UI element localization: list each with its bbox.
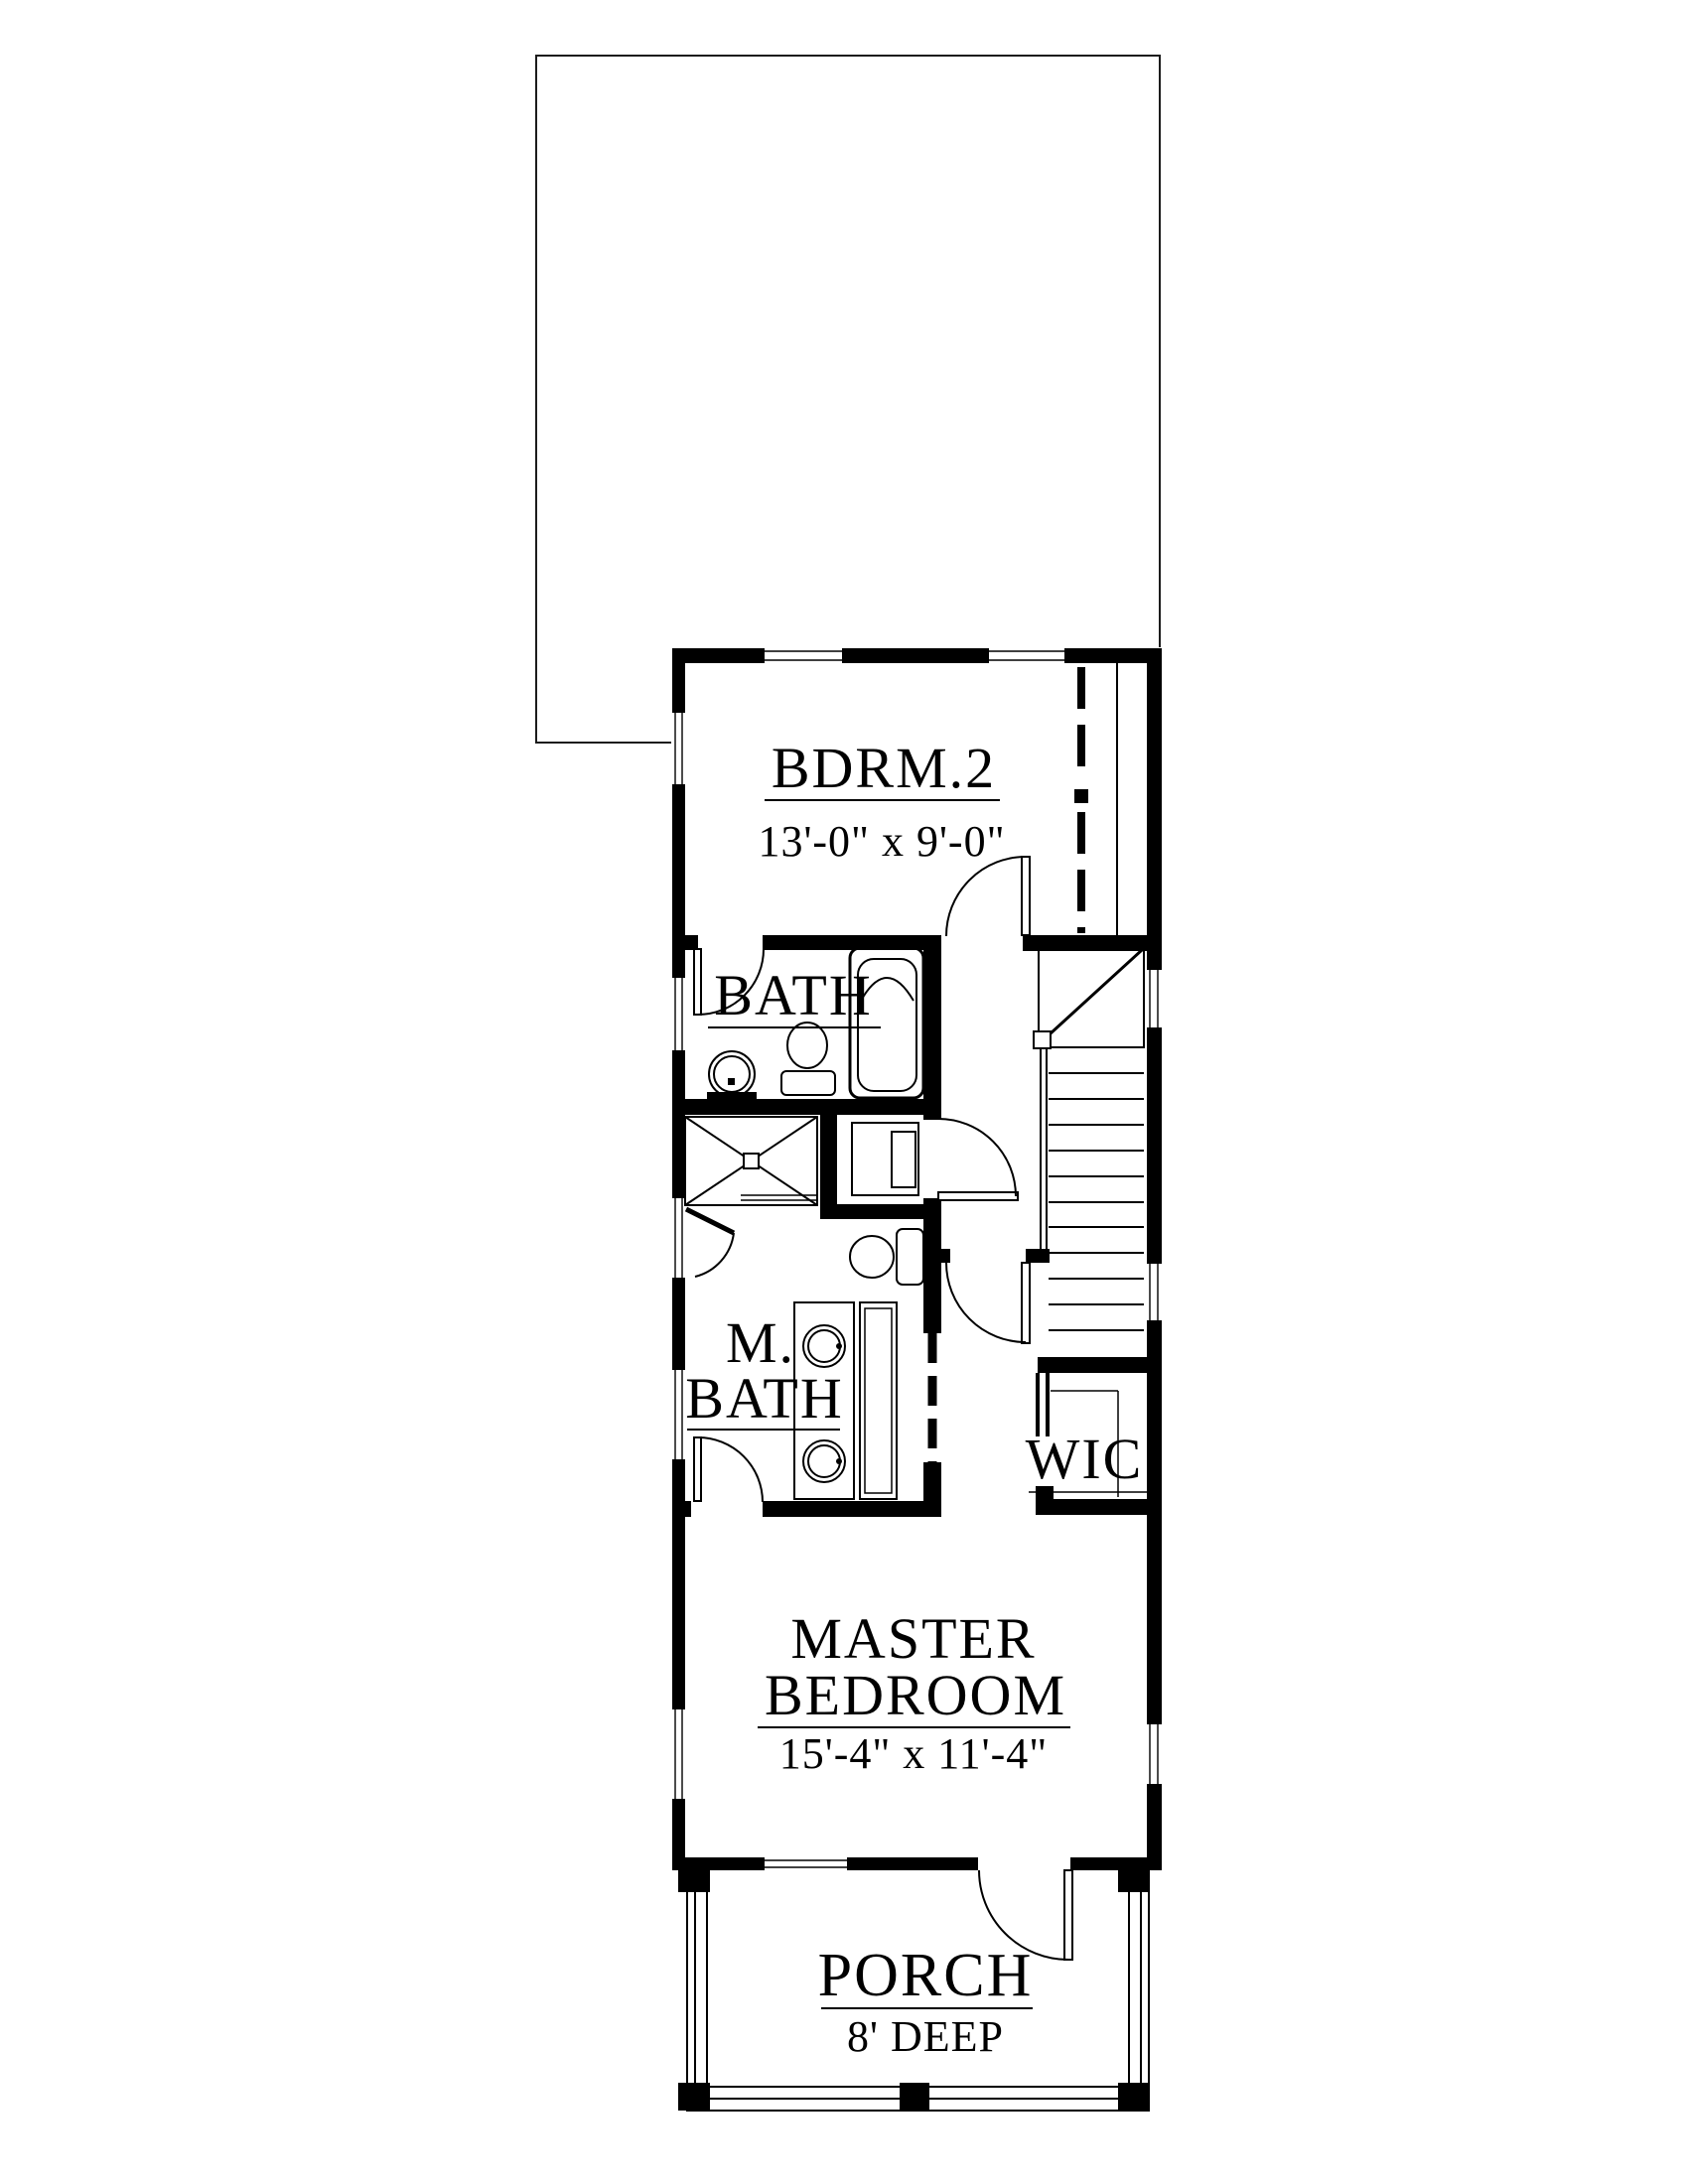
shower-drain	[744, 1154, 759, 1168]
porch-door-opening	[978, 1856, 1070, 1871]
sink-pedestal	[781, 1071, 835, 1095]
window-west-bath	[671, 978, 686, 1050]
window-gap	[671, 1370, 686, 1459]
wall-stair-south	[1038, 1357, 1162, 1373]
master-label-line2: BEDROOM	[765, 1663, 1066, 1727]
master-label-line1: MASTER	[790, 1606, 1036, 1671]
vanity-sink-2-faucet	[836, 1458, 842, 1464]
window-gap	[1146, 1724, 1163, 1784]
wall-doorb-west-jamb	[923, 1249, 950, 1263]
floor-plan-drawing: BDRM.2 13'-0" x 9'-0" BATH M. BATH WIC M…	[0, 0, 1688, 2184]
porch-label: PORCH	[818, 1942, 1034, 2009]
wall-tub-east	[923, 935, 941, 1120]
porch-column-se	[1118, 2083, 1150, 2111]
door-leaf	[1064, 1870, 1072, 1960]
bdrm2-label: BDRM.2	[772, 736, 996, 800]
toilet	[707, 1051, 757, 1102]
window-east-master	[1146, 1724, 1163, 1784]
toilet-tank	[707, 1092, 757, 1102]
wic-label: WIC	[1026, 1427, 1144, 1491]
wall-landing-north	[1023, 935, 1147, 951]
mbath-label-line2: BATH	[685, 1366, 843, 1431]
wall-bdrm2-bath-west-jamb	[685, 935, 698, 950]
wall-mbath-south	[763, 1501, 941, 1517]
window-gap	[1146, 970, 1163, 1027]
cabinet-outer	[852, 1123, 918, 1195]
toilet-bowl	[850, 1236, 894, 1278]
door-leaf	[1022, 1263, 1030, 1343]
wall-north	[672, 648, 1162, 663]
wall-mbath-south-jamb	[672, 1501, 691, 1517]
window-gap	[671, 1709, 686, 1799]
window-north-2	[989, 647, 1064, 664]
window-west-shower	[671, 1198, 686, 1278]
window-gap	[989, 647, 1064, 664]
stair-newel-post	[1034, 1031, 1051, 1048]
sink-basin	[787, 1023, 827, 1068]
wall-shower-east	[820, 1115, 837, 1219]
bath-label: BATH	[714, 963, 872, 1027]
window-gap	[1146, 1264, 1163, 1320]
porch-column-ne	[1118, 1868, 1150, 1892]
door-leaf	[1022, 857, 1030, 935]
window-east-stair-1	[1146, 970, 1163, 1027]
bdrm2-dims: 13'-0" x 9'-0"	[758, 817, 1005, 866]
window-gap	[671, 713, 686, 784]
porch-column-sw	[678, 2083, 710, 2111]
window-gap	[765, 1856, 847, 1871]
wall-nook-south	[820, 1204, 941, 1219]
closet-door-dash-dot	[1074, 789, 1088, 803]
window-west-mbath	[671, 1370, 686, 1459]
toilet-flush	[728, 1078, 735, 1085]
wall-hall-west-lower	[923, 1462, 941, 1502]
wall-east	[1147, 648, 1162, 1870]
window-north-1	[765, 647, 842, 664]
door-leaf	[694, 1437, 701, 1501]
master-dims: 15'-4" x 11'-4"	[779, 1729, 1048, 1778]
porch-dims: 8' DEEP	[847, 2012, 1004, 2061]
wall-south	[672, 1857, 1162, 1870]
door-leaf	[938, 1192, 1018, 1200]
window-south-master	[765, 1856, 847, 1871]
linen-cabinet	[860, 1302, 897, 1499]
window-gap	[765, 647, 842, 664]
floor-plan-page: BDRM.2 13'-0" x 9'-0" BATH M. BATH WIC M…	[0, 0, 1688, 2184]
vanity-sink-1-faucet	[836, 1343, 842, 1349]
porch-column-nw	[678, 1868, 710, 1892]
nook-cabinet	[852, 1123, 918, 1195]
window-west-master	[671, 1709, 686, 1799]
linen-inner	[865, 1308, 892, 1493]
wall-hall-west-upper	[923, 1198, 941, 1249]
window-gap	[671, 1198, 686, 1278]
window-west-bdrm2	[671, 713, 686, 784]
window-gap	[671, 978, 686, 1050]
wall-hall-west-mid	[923, 1263, 941, 1333]
porch-column-s-mid	[900, 2083, 929, 2111]
wall-wic-south	[1036, 1499, 1162, 1515]
window-east-stair-2	[1146, 1264, 1163, 1320]
toilet-tank	[897, 1229, 923, 1285]
toilet-bowl-inner	[714, 1056, 750, 1092]
door-leaf	[694, 949, 701, 1015]
